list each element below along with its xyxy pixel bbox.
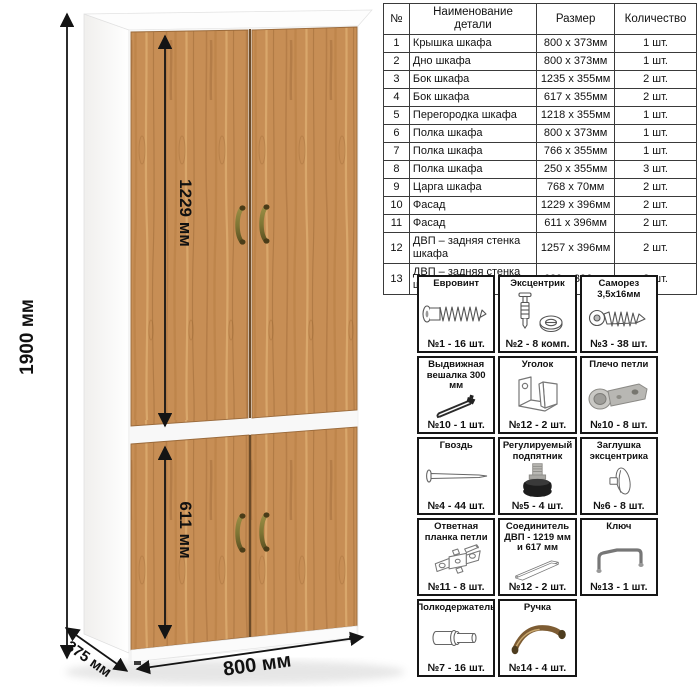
hdf-connector-icon xyxy=(502,554,572,582)
hardware-cell: Заглушка эксцентрика№6 - 8 шт. xyxy=(580,437,658,515)
hardware-item-name: Выдвижная вешалка 300 мм xyxy=(420,360,492,392)
table-header-cell: № xyxy=(384,4,410,35)
table-cell: Дно шкафа xyxy=(409,53,536,71)
hinge-plate-icon xyxy=(422,543,490,581)
table-cell: Бок шкафа xyxy=(409,71,536,89)
table-cell: 1 шт. xyxy=(615,125,697,143)
hardware-item-name: Соединитель ДВП - 1219 мм и 617 мм xyxy=(501,522,573,554)
self-tapping-screw-icon xyxy=(587,300,651,338)
table-cell: Царга шкафа xyxy=(409,179,536,197)
hardware-item-count: №10 - 1 шт. xyxy=(427,419,484,431)
hardware-cell: Уголок№12 - 2 шт. xyxy=(498,356,576,434)
hardware-cell: Соединитель ДВП - 1219 мм и 617 мм№12 - … xyxy=(498,518,576,596)
hardware-item-name: Заглушка эксцентрика xyxy=(583,441,655,462)
table-row: 10Фасад1229 x 396мм2 шт. xyxy=(384,197,697,215)
table-cell: 1229 x 396мм xyxy=(537,197,615,215)
hardware-item-count: №1 - 16 шт. xyxy=(427,338,484,350)
table-cell: 13 xyxy=(384,264,410,295)
hardware-item-count: №2 - 8 комп. xyxy=(505,338,569,350)
table-cell: 1 шт. xyxy=(615,53,697,71)
table-cell: Полка шкафа xyxy=(409,143,536,161)
parts-table-body: 1Крышка шкафа800 x 373мм1 шт.2Дно шкафа8… xyxy=(384,35,697,295)
table-header-row: №Наименование деталиРазмерКоличество xyxy=(384,4,697,35)
hardware-item-name: Гвоздь xyxy=(440,441,473,452)
door-upper-right xyxy=(252,27,357,418)
table-cell: 800 x 373мм xyxy=(537,125,615,143)
table-row: 6Полка шкафа800 x 373мм1 шт. xyxy=(384,125,697,143)
handle-icon xyxy=(505,614,569,663)
hardware-cell: Выдвижная вешалка 300 мм№10 - 1 шт. xyxy=(417,356,495,434)
hardware-item-count: №12 - 2 шт. xyxy=(509,581,566,593)
table-cell: Фасад xyxy=(409,215,536,233)
hardware-item-count: №11 - 8 шт. xyxy=(428,581,485,593)
table-cell: 2 xyxy=(384,53,410,71)
table-cell: 611 x 396мм xyxy=(537,215,615,233)
table-cell: 1218 x 355мм xyxy=(537,107,615,125)
table-row: 8Полка шкафа250 x 355мм3 шт. xyxy=(384,161,697,179)
table-cell: Перегородка шкафа xyxy=(409,107,536,125)
table-cell: 2 шт. xyxy=(615,179,697,197)
hardware-cell: Ключ№13 - 1 шт. xyxy=(580,518,658,596)
euro-screw-icon xyxy=(420,290,492,339)
table-cell: 12 xyxy=(384,233,410,264)
hardware-cell: Ответная планка петли№11 - 8 шт. xyxy=(417,518,495,596)
cabinet-foot-left xyxy=(134,661,141,665)
hardware-item-name: Эксцентрик xyxy=(510,279,565,290)
key-icon xyxy=(587,533,651,582)
table-header-cell: Количество xyxy=(615,4,697,35)
hardware-item-name: Ручка xyxy=(524,603,551,614)
hardware-cell: Ручка№14 - 4 шт. xyxy=(498,599,576,677)
table-cell: Крышка шкафа xyxy=(409,35,536,53)
hardware-item-name: Ключ xyxy=(606,522,631,533)
assembly-sheet: 1900 мм 1229 мм 611 мм 800 мм 375 мм №На… xyxy=(0,0,700,700)
corner-bracket-icon xyxy=(505,371,569,420)
hardware-item-name: Евровинт xyxy=(433,279,479,290)
table-cell: 1 шт. xyxy=(615,143,697,161)
hardware-cell: Эксцентрик№2 - 8 комп. xyxy=(498,275,576,353)
table-cell: 6 xyxy=(384,125,410,143)
table-cell: 1 шт. xyxy=(615,35,697,53)
table-cell: 1 шт. xyxy=(615,107,697,125)
table-row: 9Царга шкафа768 x 70мм2 шт. xyxy=(384,179,697,197)
hardware-item-count: №13 - 1 шт. xyxy=(590,581,647,593)
table-cell: 8 xyxy=(384,161,410,179)
table-cell: Полка шкафа xyxy=(409,161,536,179)
table-cell: 10 xyxy=(384,197,410,215)
wardrobe-illustration: 1900 мм 1229 мм 611 мм 800 мм 375 мм xyxy=(0,0,420,700)
hardware-item-name: Саморез 3,5х16мм xyxy=(583,279,655,300)
table-cell: Фасад xyxy=(409,197,536,215)
table-cell: Бок шкафа xyxy=(409,89,536,107)
table-cell: 766 x 355мм xyxy=(537,143,615,161)
table-cell: 768 x 70мм xyxy=(537,179,615,197)
cabinet-side-panel xyxy=(84,14,129,653)
table-cell: 617 x 355мм xyxy=(537,89,615,107)
hardware-item-count: №12 - 2 шт. xyxy=(509,419,566,431)
hardware-item-count: №4 - 44 шт. xyxy=(427,500,484,512)
table-cell: 1 xyxy=(384,35,410,53)
hardware-item-count: №5 - 4 шт. xyxy=(512,500,564,512)
hardware-grid: Евровинт№1 - 16 шт.Эксцентрик№2 - 8 комп… xyxy=(417,275,658,677)
hardware-cell: Плечо петли№10 - 8 шт. xyxy=(580,356,658,434)
table-row: 7Полка шкафа766 x 355мм1 шт. xyxy=(384,143,697,161)
hardware-item-name: Плечо петли xyxy=(589,360,648,371)
table-cell: 4 xyxy=(384,89,410,107)
table-cell: Полка шкафа xyxy=(409,125,536,143)
table-cell: 2 шт. xyxy=(615,233,697,264)
cam-cap-icon xyxy=(594,462,644,500)
hardware-item-name: Регулируемый подпятник xyxy=(501,441,573,462)
hardware-cell: Полкодержатель№7 - 16 шт. xyxy=(417,599,495,677)
table-cell: 3 xyxy=(384,71,410,89)
door-lower-right xyxy=(251,427,357,637)
shelf-pin-icon xyxy=(426,614,486,663)
parts-table-header: №Наименование деталиРазмерКоличество xyxy=(384,4,697,35)
parts-table: №Наименование деталиРазмерКоличество 1Кр… xyxy=(383,3,697,295)
table-row: 1Крышка шкафа800 x 373мм1 шт. xyxy=(384,35,697,53)
table-cell: 1235 x 355мм xyxy=(537,71,615,89)
table-cell: 250 x 355мм xyxy=(537,161,615,179)
adjustable-foot-icon xyxy=(509,462,565,500)
table-cell: 2 шт. xyxy=(615,71,697,89)
hardware-item-count: №10 - 8 шт. xyxy=(590,419,647,431)
table-header-cell: Размер xyxy=(537,4,615,35)
pull-out-hanger-icon xyxy=(421,392,491,420)
hardware-item-name: Полкодержатель xyxy=(417,603,495,614)
table-row: 12ДВП – задняя стенка шкафа1257 x 396мм2… xyxy=(384,233,697,264)
cam-lock-icon xyxy=(505,290,569,339)
table-cell: 5 xyxy=(384,107,410,125)
dimension-label-upper-door: 1229 мм xyxy=(176,179,195,247)
dimension-label-lower-door: 611 мм xyxy=(176,501,195,558)
hardware-item-name: Ответная планка петли xyxy=(420,522,492,543)
table-cell: 7 xyxy=(384,143,410,161)
dimension-label-height: 1900 мм xyxy=(17,299,38,375)
nail-icon xyxy=(421,452,491,501)
hardware-item-name: Уголок xyxy=(522,360,553,371)
table-cell: 800 x 373мм xyxy=(537,53,615,71)
table-row: 2Дно шкафа800 x 373мм1 шт. xyxy=(384,53,697,71)
table-cell: 9 xyxy=(384,179,410,197)
table-row: 5Перегородка шкафа1218 x 355мм1 шт. xyxy=(384,107,697,125)
table-row: 4Бок шкафа617 x 355мм2 шт. xyxy=(384,89,697,107)
hardware-cell: Гвоздь№4 - 44 шт. xyxy=(417,437,495,515)
table-cell: 11 xyxy=(384,215,410,233)
hardware-item-count: №6 - 8 шт. xyxy=(593,500,645,512)
table-cell: 3 шт. xyxy=(615,161,697,179)
table-row: 3Бок шкафа1235 x 355мм2 шт. xyxy=(384,71,697,89)
table-cell: 1257 x 396мм xyxy=(537,233,615,264)
table-cell: 2 шт. xyxy=(615,89,697,107)
table-cell: 2 шт. xyxy=(615,215,697,233)
hardware-item-count: №14 - 4 шт. xyxy=(509,662,566,674)
table-cell: 800 x 373мм xyxy=(537,35,615,53)
hardware-cell: Евровинт№1 - 16 шт. xyxy=(417,275,495,353)
table-header-cell: Наименование детали xyxy=(409,4,536,35)
hinge-arm-icon xyxy=(585,371,653,420)
table-cell: ДВП – задняя стенка шкафа xyxy=(409,233,536,264)
hardware-cell: Саморез 3,5х16мм№3 - 38 шт. xyxy=(580,275,658,353)
table-cell: 2 шт. xyxy=(615,197,697,215)
hardware-item-count: №3 - 38 шт. xyxy=(590,338,647,350)
table-row: 11Фасад611 x 396мм2 шт. xyxy=(384,215,697,233)
hardware-item-count: №7 - 16 шт. xyxy=(427,662,484,674)
hardware-cell: Регулируемый подпятник№5 - 4 шт. xyxy=(498,437,576,515)
